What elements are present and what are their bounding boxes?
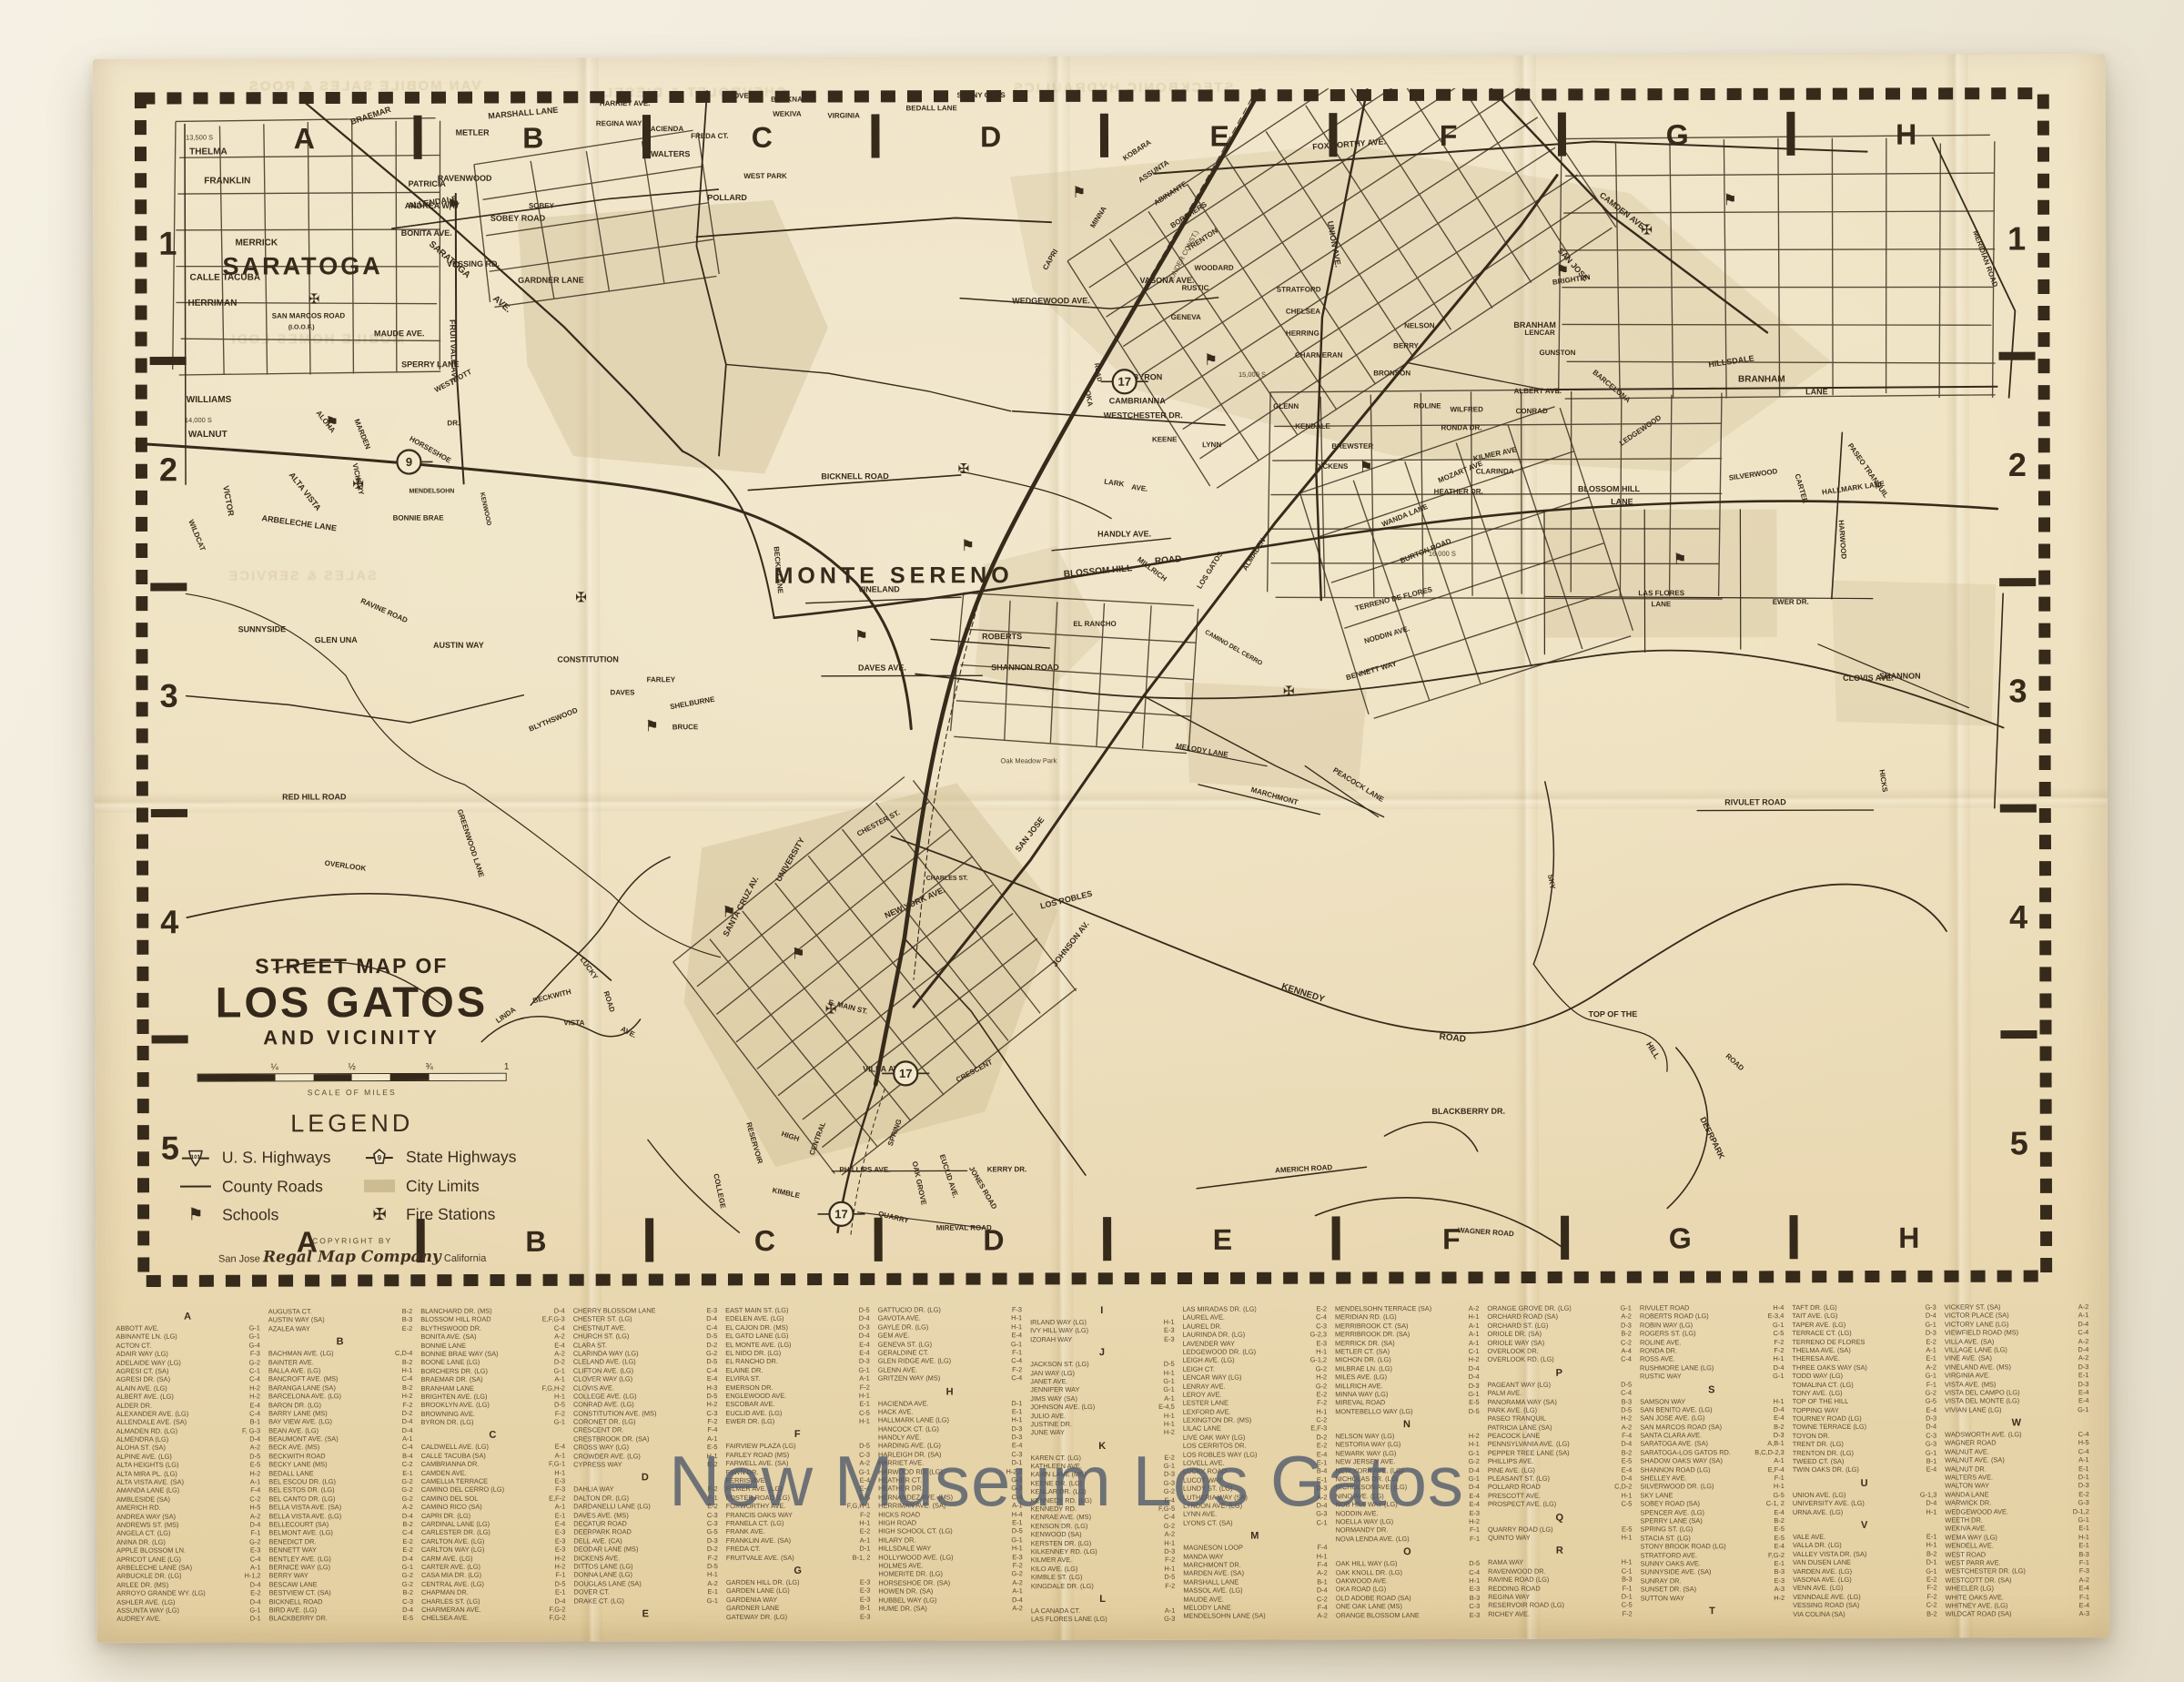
- index-entry-gridref: D-4: [402, 1426, 413, 1434]
- index-entry-gridref: F-4: [1318, 1603, 1328, 1611]
- index-entry-street: ELAINE DR.: [725, 1366, 763, 1374]
- legend-item-label: County Roads: [222, 1177, 323, 1196]
- title-block: STREET MAP OF LOS GATOS AND VICINITY ¼½¾…: [153, 954, 551, 1267]
- index-entry: RIVULET ROADH-4: [1640, 1303, 1784, 1312]
- index-entry: BELLA VISTA AVE. (LG)D-4: [268, 1512, 412, 1521]
- index-entry: WALNUT AVE.C-4: [1945, 1447, 2088, 1456]
- street-label: CLARINDA: [1476, 467, 1514, 475]
- index-entry-gridref: E-5: [1774, 1525, 1785, 1533]
- index-entry-street: MASSOL AVE. (LG): [1183, 1586, 1242, 1596]
- street-label: STRATFORD: [1277, 286, 1321, 294]
- index-entry-gridref: H-1: [1164, 1411, 1175, 1419]
- index-entry-gridref: E-2: [860, 1527, 871, 1535]
- index-entry-gridref: G-1: [1925, 1320, 1936, 1328]
- street-label: ROLINE: [1413, 401, 1441, 410]
- index-entry-street: ANGELA CT. (LG): [116, 1529, 171, 1538]
- index-entry-gridref: D-5: [1164, 1573, 1175, 1581]
- index-entry: ALTA MIRA PL. (LG)H-2: [116, 1469, 260, 1478]
- index-entry-gridref: G-2: [706, 1349, 717, 1357]
- index-entry-street: LUCKY ROAD: [1183, 1467, 1227, 1476]
- index-entry-street: TAFT DR. (LG): [1792, 1303, 1836, 1312]
- index-entry: BANCROFT AVE. (MS)C-4: [268, 1374, 412, 1383]
- street-label: MAUDE AVE.: [374, 329, 425, 338]
- index-entry-street: FRUITVALE AVE. (SA): [726, 1553, 794, 1562]
- index-entry-gridref: D-5: [1164, 1360, 1175, 1368]
- index-entry-street: ALLENDALE AVE. (SA): [116, 1418, 187, 1427]
- index-entry-gridref: E-1: [402, 1469, 413, 1477]
- school-icon: ⚑: [961, 537, 975, 554]
- index-entry: GENEVA ST. (LG)G-1: [878, 1340, 1022, 1349]
- index-entry-street: KAVIN LANE (MS): [1031, 1471, 1087, 1480]
- street-label: RAVENWOOD: [438, 174, 492, 183]
- index-entry-gridref: C-4: [249, 1375, 260, 1383]
- index-entry-street: CORONET DR. (LG): [573, 1417, 635, 1426]
- index-entry: METLER CT. (SA)C-1: [1335, 1347, 1479, 1356]
- index-entry: AMERICH RD.H-5: [116, 1504, 260, 1513]
- index-entry-street: SHANNON ROAD (LG): [1640, 1465, 1710, 1474]
- street-label: KEENE: [1152, 435, 1178, 443]
- index-entry-street: AGRESI DR. (SA): [116, 1375, 171, 1384]
- index-entry-gridref: G-1: [1164, 1462, 1175, 1470]
- index-entry-gridref: D-2: [1316, 1433, 1327, 1441]
- index-entry-street: CARDINAL LANE (LG): [421, 1520, 490, 1529]
- index-entry-street: UNIVERSITY AVE. (LG): [1793, 1499, 1865, 1508]
- index-entry: PROSPECT AVE. (LG)C-5: [1488, 1500, 1632, 1509]
- grid-column-letter: F: [1442, 1222, 1461, 1255]
- index-entry: BRIGHTEN AVE. (LG)H-1: [420, 1392, 564, 1401]
- index-entry: HOLLYWOOD AVE. (LG)E-3: [878, 1553, 1022, 1562]
- index-entry: TOWNE TERRACE (LG)D-4: [1793, 1423, 1936, 1432]
- county-road-line-icon: [177, 1182, 214, 1191]
- grid-row-number: 2: [159, 451, 177, 488]
- shield-number: 17: [899, 1067, 913, 1080]
- index-entry-street: HORSESHOE DR. (SA): [878, 1578, 950, 1587]
- shield-number: 17: [1117, 375, 1131, 389]
- grid-column-letter: F: [1440, 119, 1458, 152]
- index-entry: POLLARD ROADC,D-2: [1488, 1483, 1632, 1492]
- index-entry-street: CRESCENT DR.: [573, 1426, 623, 1435]
- index-entry-gridref: E-3: [555, 1536, 566, 1545]
- index-entry: TWEED CT. (SA)B-1: [1793, 1457, 1936, 1466]
- map-note: 14,000 S: [185, 416, 212, 424]
- index-entry-street: ALAIN AVE. (LG): [116, 1383, 167, 1393]
- index-entry: CLOVER WAY (LG)E-4: [573, 1374, 717, 1383]
- grid-column-letter: H: [1896, 118, 1916, 151]
- index-entry: AUDREY AVE.D-1: [116, 1615, 260, 1624]
- index-entry-street: IRLAND WAY (LG): [1030, 1318, 1087, 1327]
- index-entry-street: NEW YORK AVE. (LG): [1335, 1466, 1403, 1475]
- index-entry-gridref: D-3: [859, 1357, 870, 1365]
- index-entry-gridref: F,G-2: [549, 1614, 565, 1622]
- index-entry-gridref: G-1,3: [1920, 1490, 1937, 1498]
- index-section-letter: W: [1945, 1417, 2088, 1428]
- index-entry-gridref: D-3: [1621, 1321, 1632, 1329]
- index-entry-gridref: A-1: [1469, 1322, 1480, 1330]
- index-entry: PHILLIPS AVE.E-5: [1488, 1457, 1632, 1466]
- index-entry-street: DONNA LANE (LG): [573, 1571, 632, 1580]
- fire-station-icon: ✠: [308, 291, 320, 307]
- school-icon: ⚑: [1673, 551, 1686, 568]
- index-entry-street: BELMONT AVE. (LG): [268, 1529, 332, 1538]
- index-entry: EL MONTE AVE. (LG)E-4: [725, 1340, 869, 1349]
- index-entry-street: TAPER AVE. (LG): [1792, 1321, 1845, 1330]
- index-entry: CHESTNUT AVE.C-4: [573, 1323, 717, 1332]
- index-entry-street: BAY VIEW AVE. (LG): [268, 1418, 332, 1427]
- index-entry-gridref: H-2: [402, 1392, 413, 1400]
- scale-bar-segment: [313, 1074, 351, 1080]
- index-entry: FRANELA CT. (LG)H-1: [726, 1519, 870, 1528]
- index-entry: VIA COLINA (SA)B-2: [1793, 1609, 1936, 1618]
- index-entry: BORCHERS DR. (LG)G-1: [420, 1366, 564, 1375]
- index-entry-street: BRAEMAR DR. (SA): [420, 1375, 482, 1384]
- index-entry-street: ROGERS ST. (LG): [1640, 1329, 1696, 1338]
- index-entry-street: ROBIN WAY (LG): [1640, 1321, 1693, 1330]
- index-entry-street: TOP OF THE HILL: [1793, 1397, 1849, 1406]
- index-entry: ALPINE AVE. (LG)D-5: [116, 1452, 260, 1461]
- index-entry-street: WILDCAT ROAD (SA): [1946, 1610, 2012, 1619]
- index-entry: KILKENNEY RD. (LG)D-3: [1031, 1547, 1175, 1556]
- index-entry-gridref: B-2: [403, 1588, 414, 1596]
- index-entry: MICHON DR. (LG)H-2: [1335, 1355, 1479, 1364]
- bleed-through-text: VAN MOBILE SALES & ROOSCHEVROLET & DIESE…: [93, 54, 2106, 59]
- index-entry-gridref: D-5: [706, 1332, 717, 1340]
- index-entry-gridref: A-2: [2078, 1576, 2089, 1584]
- index-entry: STONY BROOK ROAD (LG)E-4: [1641, 1542, 1785, 1551]
- index-entry-gridref: E,F-3: [1310, 1424, 1327, 1433]
- index-entry: COLLEGE AVE. (LG)D-5: [573, 1392, 717, 1401]
- index-entry-gridref: D-5: [249, 1452, 260, 1460]
- index-entry-gridref: C-2: [1316, 1415, 1327, 1424]
- index-entry-street: CONSTITUTION AVE. (MS): [573, 1409, 656, 1418]
- index-entry: BARRY LANE (MS)D-2: [268, 1409, 412, 1418]
- index-entry: EL GATO LANE (LG)D-4: [725, 1332, 869, 1341]
- index-entry-street: DOVER CT.: [573, 1588, 609, 1596]
- index-entry: GARDENIA WAYE-3: [726, 1595, 870, 1604]
- index-entry-gridref: A-2: [1012, 1604, 1023, 1612]
- fire-station-icon: ✠: [575, 590, 587, 605]
- index-entry-street: DITTOS LANE (LG): [573, 1562, 632, 1571]
- index-entry-street: RAVINE ROAD (LG): [1488, 1576, 1549, 1585]
- index-entry: VICTOR PLACE (SA)A-1: [1945, 1312, 2088, 1321]
- index-entry-street: WEST ROAD: [1945, 1550, 1986, 1559]
- grid-column-separator: [1332, 1216, 1340, 1260]
- index-entry-street: LEIGH CT.: [1183, 1364, 1215, 1373]
- index-entry-street: MERRIBROOK CT. (SA): [1335, 1322, 1409, 1331]
- index-entry-gridref: G-2: [1164, 1487, 1175, 1495]
- index-entry-street: THERESA AVE.: [1792, 1354, 1839, 1363]
- index-entry-street: CHAPMAN DR.: [421, 1588, 469, 1597]
- index-entry-gridref: C-3: [859, 1451, 870, 1459]
- index-entry-gridref: E-4: [1469, 1492, 1480, 1500]
- index-entry-street: TOYON DR.: [1793, 1432, 1830, 1440]
- index-entry: HILARY DR.G-1: [878, 1535, 1022, 1545]
- index-entry: MERRIBROOK CT. (SA)A-1: [1335, 1322, 1479, 1331]
- index-entry: SAN JOSE AVE. (LG)E-4: [1640, 1413, 1784, 1423]
- index-entry-street: LYONS CT. (SA): [1183, 1518, 1233, 1527]
- index-entry-street: KENSON DR. (LG): [1031, 1522, 1088, 1531]
- index-entry-street: LUNDY ST. (LG): [1183, 1484, 1233, 1494]
- index-entry-gridref: E-2: [2078, 1490, 2089, 1498]
- street-label: EL RANCHO: [1073, 620, 1116, 628]
- index-entry: APRICOT LANE (LG)C-4: [116, 1555, 260, 1564]
- index-entry: ARBUCKLE DR. (LG)H-1,2: [116, 1572, 260, 1581]
- index-entry-gridref: E-3: [860, 1612, 871, 1620]
- index-entry-street: LAS FLORES LANE (LG): [1031, 1615, 1107, 1624]
- index-entry-gridref: D-4: [1317, 1586, 1328, 1594]
- index-entry-street: VALLEY VISTA DR. (SA): [1793, 1550, 1866, 1559]
- index-entry-street: SARATOGA-LOS GATOS RD.: [1640, 1448, 1731, 1457]
- index-entry-gridref: D-4: [402, 1512, 413, 1520]
- index-entry-street: HANCOCK CT. (LG): [878, 1424, 939, 1434]
- index-entry: ORANGE GROVE DR. (LG)G-1: [1487, 1303, 1631, 1312]
- index-entry-street: ROSS AVE.: [1640, 1355, 1675, 1363]
- index-entry: SUTTON WAYH-2: [1641, 1594, 1785, 1603]
- index-entry: DOVER CT.E-1: [573, 1587, 717, 1596]
- index-entry-gridref: A-1: [1012, 1501, 1023, 1509]
- index-entry-street: QUINTO WAY: [1488, 1534, 1531, 1543]
- index-entry: PALM AVE.C-4: [1488, 1389, 1632, 1398]
- index-entry: ASHLER AVE. (LG)D-4: [116, 1597, 260, 1606]
- grid-row-separator: [150, 357, 187, 365]
- index-entry-street: BICKNELL ROAD: [269, 1597, 323, 1606]
- index-entry-gridref: A-1: [1469, 1338, 1480, 1346]
- index-entry: MAUDE AVE.C-2: [1183, 1595, 1327, 1604]
- index-entry: ALOHA ST. (SA)A-2: [116, 1444, 260, 1453]
- street-label: HARWOOD: [1837, 520, 1848, 560]
- index-entry: MILBRAE LN. (LG)D-4: [1335, 1364, 1479, 1373]
- index-entry-street: HEATHER DR.: [878, 1484, 924, 1494]
- index-entry: FAIRVIEW PLAZA (LG)D-5: [726, 1442, 870, 1451]
- index-entry: VIEWFIELD ROAD (MS)C-4: [1945, 1328, 2088, 1337]
- index-entry: BYRON DR. (LG)G-1: [421, 1418, 565, 1427]
- index-entry: ELVIRA ST.A-1: [725, 1374, 869, 1383]
- index-entry-street: AUGUSTA CT.: [268, 1307, 312, 1316]
- index-entry-gridref: D-1,2: [2073, 1507, 2089, 1515]
- index-entry-gridref: C-1: [1622, 1566, 1633, 1575]
- highway-shield-9: 9: [385, 450, 432, 473]
- index-entry: ANDREA WAY (SA)A-2: [116, 1512, 260, 1521]
- index-entry-street: CALLE TACUBA (SA): [421, 1452, 486, 1461]
- grid-column-letter: D: [980, 120, 1001, 153]
- index-entry-street: BENTLEY AVE. (LG): [268, 1555, 330, 1564]
- index-entry-street: ALMADEN RD. (LG): [116, 1426, 177, 1435]
- legend-item-label: Schools: [222, 1205, 278, 1224]
- index-entry-gridref: G-3: [1926, 1440, 1936, 1448]
- index-entry: ARLEE DR. (MS)D-4: [116, 1580, 260, 1589]
- index-entry-street: CAMELLIA TERRACE: [421, 1477, 488, 1486]
- index-entry-street: HALLMARK LANE (LG): [878, 1416, 949, 1425]
- index-entry-gridref: H-2: [1469, 1355, 1480, 1363]
- street-label: SHANNON ROAD: [991, 663, 1059, 672]
- index-entry-gridref: G-2: [1316, 1364, 1327, 1373]
- index-entry: LAUREL DR.C-3: [1183, 1322, 1327, 1331]
- index-entry-street: BIRD AVE. (LG): [269, 1606, 317, 1615]
- index-entry: DAVES AVE. (MS)C-3: [573, 1511, 717, 1520]
- index-entry-street: ORIOLE DR. (SA): [1487, 1330, 1542, 1339]
- index-entry-gridref: C-4: [402, 1528, 413, 1536]
- street-line: [1832, 138, 1833, 396]
- index-entry-gridref: E-2: [402, 1545, 413, 1554]
- index-entry-gridref: C-5: [859, 1408, 870, 1416]
- street-label: BLYTHSWOOD: [528, 706, 579, 734]
- index-entry: FRANKLIN AVE. (SA)A-1: [726, 1535, 870, 1545]
- index-entry-street: FERRIS AVE.: [726, 1476, 767, 1485]
- index-entry-street: RUSTIC WAY: [1640, 1372, 1682, 1381]
- index-entry-gridref: A-1: [2078, 1312, 2089, 1320]
- index-entry-street: WANDA LANE: [1945, 1490, 1988, 1499]
- index-entry-street: CARLTON WAY (LG): [421, 1545, 484, 1555]
- index-entry: BECKY LANE (MS)C-2: [268, 1460, 412, 1469]
- index-entry: JOHNSON AVE. (LG)E-4,5: [1030, 1403, 1174, 1412]
- street-line: [1374, 634, 1631, 720]
- index-entry-gridref: C-3: [1469, 1602, 1480, 1610]
- index-entry: HIGH SCHOOL CT. (LG)D-5: [878, 1527, 1022, 1536]
- scale-tick-label: 1: [504, 1062, 510, 1072]
- index-entry-gridref: D-1: [1926, 1558, 1937, 1566]
- grid-row-number: 4: [160, 903, 178, 940]
- grid-column-letter: C: [752, 121, 773, 154]
- legend-item: 101U. S. Highways: [177, 1147, 358, 1170]
- index-entry-street: CAMINO DEL SOL: [421, 1495, 479, 1504]
- index-entry-gridref: H-1: [1774, 1482, 1785, 1490]
- index-entry: VESSING ROAD (SA)C-2: [1793, 1601, 1936, 1610]
- index-entry: BARCELONA AVE. (LG)H-2: [268, 1392, 412, 1401]
- index-entry: VISTA AVE. (MS)D-3: [1945, 1380, 2088, 1389]
- index-entry: NESTORIA WAY (LG)H-1: [1335, 1440, 1479, 1449]
- index-entry-gridref: B-3: [2078, 1550, 2089, 1558]
- index-entry: WADSWORTH AVE. (LG)C-4: [1945, 1430, 2088, 1439]
- index-entry-gridref: E-2: [1164, 1453, 1175, 1461]
- index-entry: LEXFORD AVE.H-1: [1183, 1407, 1327, 1416]
- index-entry: BONNIE BRAE WAY (SA)A-2: [420, 1349, 564, 1358]
- index-entry: KENWOOD (SA)A-2: [1031, 1530, 1175, 1539]
- legend-item: ✠Fire Stations: [361, 1204, 551, 1226]
- street-label: MERIDIAN ROAD: [1971, 229, 1999, 289]
- index-entry: QUARRY ROAD (LG)E-5: [1488, 1525, 1632, 1534]
- index-entry-street: TOWNE TERRACE (LG): [1793, 1423, 1866, 1432]
- index-entry: BEAUMONT AVE. (SA)A-1: [268, 1434, 412, 1444]
- index-entry: PARK AVE. (LG)D-5: [1488, 1405, 1632, 1414]
- index-entry-gridref: G-1: [2078, 1405, 2088, 1413]
- index-entry-gridref: B-2: [402, 1358, 413, 1366]
- index-entry-street: DARDANELLI LANE (LG): [573, 1503, 651, 1512]
- index-entry-street: JANET AVE.: [1030, 1377, 1067, 1385]
- index-entry-gridref: H-1: [1622, 1558, 1633, 1566]
- index-entry: EDELEN AVE. (LG)D-4: [725, 1314, 869, 1323]
- index-entry-street: FARWELL AVE. (SA): [726, 1459, 789, 1468]
- index-entry-street: FOXWORTHY AVE.: [726, 1502, 786, 1511]
- grid-row-separator: [2000, 805, 2037, 813]
- index-entry-street: VASONA AVE. (LG): [1793, 1576, 1852, 1585]
- index-entry-gridref: F-2: [1926, 1592, 1936, 1600]
- index-entry-street: FAIRVIEW PLAZA (LG): [726, 1442, 796, 1451]
- index-entry-street: VILLA AVE. (SA): [1945, 1337, 1995, 1346]
- index-entry: KILMER AVE.F-2: [1031, 1555, 1175, 1565]
- index-entry: BAINTER AVE.B-2: [268, 1358, 412, 1367]
- street-label: AVE.: [490, 294, 512, 315]
- index-entry-gridref: E-5: [1622, 1525, 1633, 1533]
- index-entry-street: BECKWITH ROAD: [268, 1452, 325, 1461]
- index-entry-gridref: E-2: [1926, 1337, 1936, 1345]
- index-entry: VALLA DR. (LG)H-1: [1793, 1541, 1936, 1550]
- index-entry-street: VIA COLINA (SA): [1793, 1609, 1845, 1618]
- street-line: [954, 736, 1187, 753]
- index-entry-street: AMANDA LANE (LG): [116, 1486, 179, 1495]
- index-entry-street: VINELAND AVE. (MS): [1945, 1363, 2011, 1372]
- index-entry: BENTLEY AVE. (LG)D-4: [268, 1555, 412, 1564]
- index-entry: LUCKY ROADB-4: [1183, 1467, 1327, 1476]
- index-entry-street: BECKY LANE (MS): [268, 1460, 327, 1469]
- index-entry-gridref: E-4: [1012, 1331, 1023, 1339]
- index-entry-street: VILLAGE LANE (LG): [1945, 1345, 2007, 1354]
- index-entry-street: CARLTON AVE. (LG): [421, 1537, 484, 1546]
- index-entry-gridref: E-4: [1012, 1442, 1023, 1450]
- index-entry-street: SUNNY OAKS AVE.: [1641, 1559, 1701, 1568]
- index-entry-street: OAK HILL WAY (LG): [1336, 1559, 1398, 1568]
- index-entry: ACTON CT.G-4: [116, 1341, 259, 1350]
- street-label: CHARMERAN: [1295, 351, 1343, 360]
- index-entry-street: ROBERTS ROAD (LG): [1640, 1312, 1709, 1322]
- index-entry: LUNDY ST. (LG)D-3: [1183, 1484, 1327, 1494]
- index-entry: HICKS ROADH-4: [878, 1510, 1022, 1519]
- index-entry-gridref: D-3: [1317, 1484, 1328, 1493]
- index-entry-street: GLEN RIDGE AVE. (LG): [878, 1357, 951, 1366]
- index-entry: TOP OF THE HILLG-5: [1793, 1397, 1936, 1406]
- index-entry-street: LYNDON AVE. (LG): [1183, 1502, 1242, 1511]
- index-entry-street: KENRAE AVE. (MS): [1031, 1513, 1091, 1522]
- index-entry-street: AMBLESIDE (SA): [116, 1495, 170, 1504]
- index-entry-gridref: E-1: [555, 1511, 566, 1519]
- index-entry: LOS CERRITOS DR.E-2: [1183, 1442, 1327, 1451]
- index-entry-street: MILLRICH AVE.: [1335, 1382, 1382, 1391]
- index-entry-street: LAURINDA DR. (LG): [1183, 1331, 1246, 1340]
- index-entry-street: ORANGE GROVE DR. (LG): [1487, 1304, 1571, 1313]
- index-entry-gridref: D-4: [250, 1597, 261, 1606]
- index-entry-street: CAPRI DR. (LG): [421, 1511, 470, 1520]
- index-section-letter: O: [1336, 1546, 1480, 1557]
- index-entry: MELODY LANEF-4: [1183, 1603, 1327, 1612]
- street-label: HANDLY AVE.: [1097, 530, 1151, 539]
- index-entry: BONITA AVE. (SA)A-2: [420, 1332, 564, 1342]
- street-label: BLOSSOM HILL: [1063, 563, 1132, 580]
- index-entry: WALNUT DR.E-1: [1945, 1464, 2088, 1474]
- grid-column-separator: [1786, 112, 1795, 156]
- index-entry: ALEXANDER AVE. (LG)C-4: [116, 1409, 260, 1418]
- highway-shield-17: 17: [817, 1202, 864, 1226]
- index-entry: NOELLA WAY (LG)H-2: [1336, 1517, 1480, 1526]
- index-entry-gridref: B-2: [402, 1307, 413, 1315]
- index-entry-street: GARDEN HILL DR. (LG): [726, 1578, 800, 1587]
- publisher-state: California: [444, 1253, 487, 1264]
- index-entry: ALTA VISTA AVE. (SA)A-1: [116, 1477, 260, 1486]
- road-line: [1831, 432, 1843, 598]
- index-entry: ROLINE AVE.F-2: [1640, 1338, 1784, 1347]
- street-label: BRONSON: [1373, 369, 1410, 377]
- index-entry: KERSTEN DR. (LG)H-1: [1031, 1538, 1175, 1547]
- index-entry: GLENN AVE.F-2: [878, 1365, 1022, 1374]
- photo-background: VAN MOBILE SALES & ROOSCHEVROLET & DIESE…: [0, 0, 2184, 1682]
- index-entry-gridref: A-3: [1774, 1585, 1785, 1593]
- index-entry-street: SUTTON WAY: [1641, 1594, 1684, 1603]
- index-entry: SUNSET DR. (SA)A-3: [1641, 1585, 1785, 1594]
- index-entry: GARDEN HILL DR. (LG)E-3: [726, 1578, 870, 1587]
- index-entry: SHELLEY AVE.F-1: [1640, 1474, 1784, 1483]
- index-entry-street: BROOKLYN AVE. (LG): [420, 1401, 489, 1410]
- index-entry: CORONET DR. (LG)F-2: [573, 1417, 717, 1426]
- index-entry-gridref: G-1: [1469, 1474, 1480, 1483]
- index-entry-gridref: G-1: [402, 1563, 413, 1571]
- index-entry: PRESCOTT AVE.H-1: [1488, 1491, 1632, 1500]
